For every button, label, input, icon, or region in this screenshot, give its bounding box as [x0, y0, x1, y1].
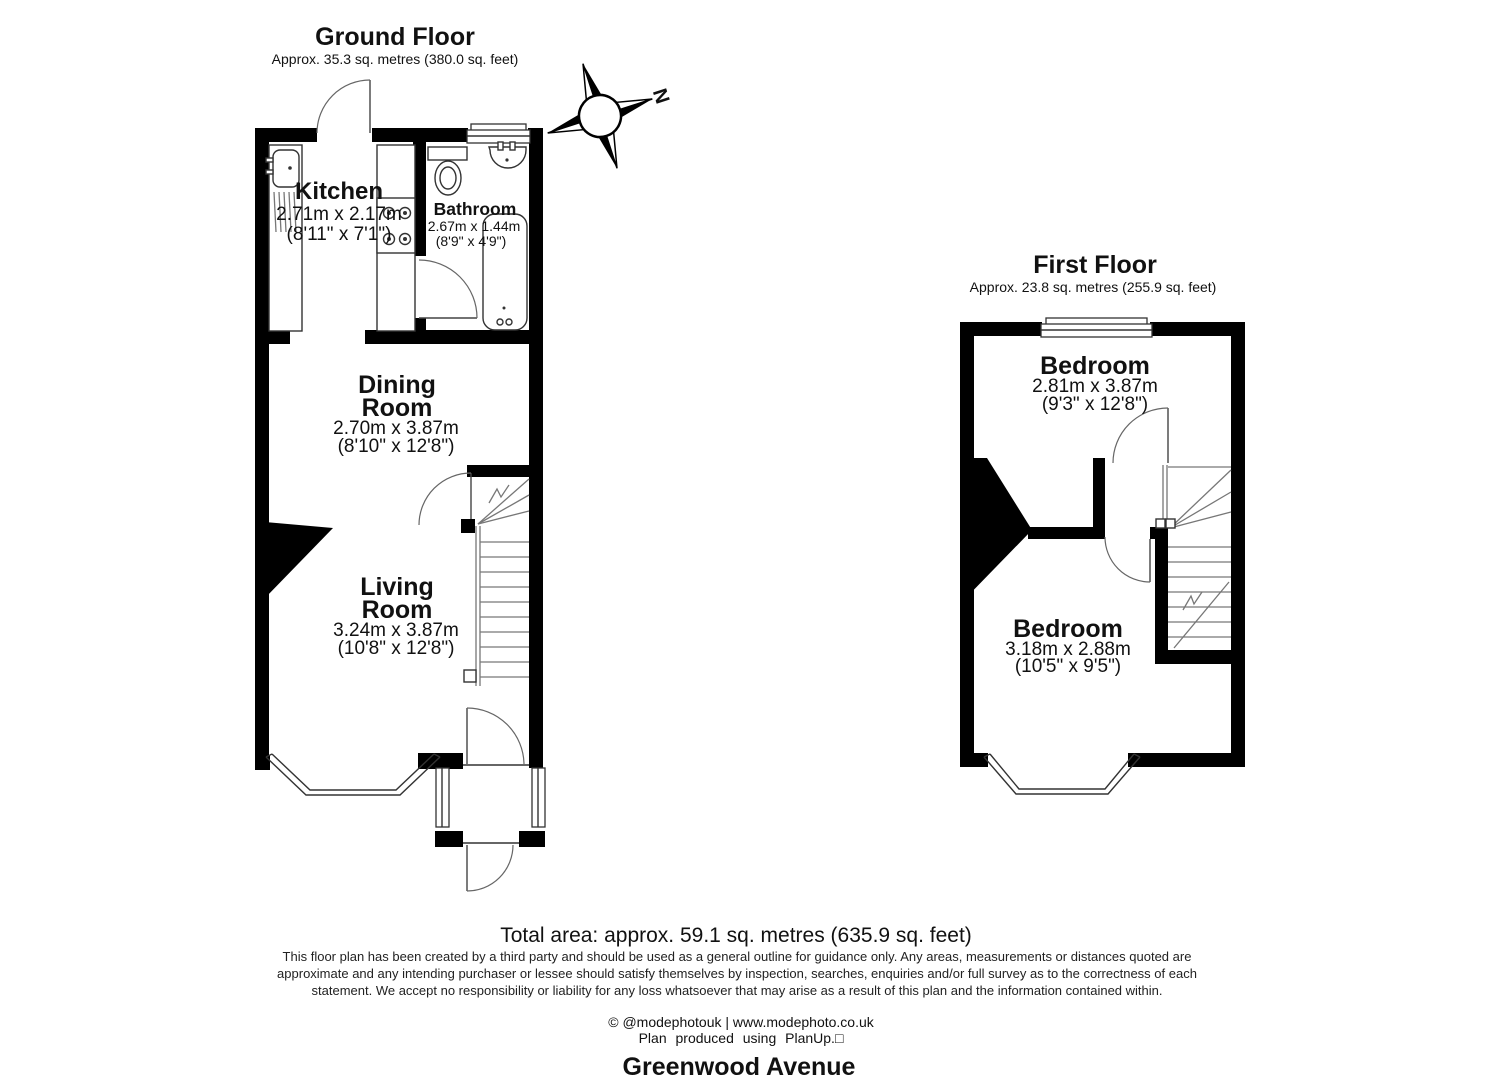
vestibule-door: [467, 708, 524, 764]
kitchen-name: Kitchen: [295, 178, 383, 205]
first-floor-plan: First Floor Approx. 23.8 sq. metres (255…: [960, 251, 1245, 794]
front-door: [463, 843, 519, 891]
bay-window-first: [984, 754, 1140, 794]
footer: Total area: approx. 59.1 sq. metres (635…: [277, 924, 1197, 1080]
bathroom-metric: 2.67m x 1.44m: [428, 218, 521, 234]
bedroom2-imperial: (10'5" x 9'5"): [1015, 656, 1121, 677]
bathroom-door: [419, 260, 477, 318]
basin-icon: [489, 142, 526, 168]
ground-floor-subtitle: Approx. 35.3 sq. metres (380.0 sq. feet): [272, 51, 519, 67]
dining-room-label: Dining Room 2.70m x 3.87m (8'10" x 12'8"…: [333, 371, 459, 457]
disclaimer-line1: This floor plan has been created by a th…: [283, 949, 1192, 964]
bathroom-name: Bathroom: [434, 199, 517, 219]
dining-imperial: (8'10" x 12'8"): [338, 436, 455, 457]
disclaimer-line3: statement. We accept no responsibility o…: [312, 983, 1163, 998]
total-area: Total area: approx. 59.1 sq. metres (635…: [500, 924, 972, 947]
toilet-icon: [428, 147, 467, 195]
kitchen-imperial: (8'11" x 7'1"): [287, 224, 392, 245]
ground-floor-title: Ground Floor: [315, 23, 475, 51]
living-imperial: (10'8" x 12'8"): [338, 638, 455, 659]
stairs-door: [419, 473, 471, 525]
porch-window-right: [532, 768, 545, 827]
first-floor-title: First Floor: [1033, 251, 1157, 279]
porch-window-left: [436, 768, 449, 827]
porch: [436, 708, 545, 891]
bathroom-imperial: (8'9" x 4'9"): [436, 233, 507, 249]
living-room-label: Living Room 3.24m x 3.87m (10'8" x 12'8"…: [333, 573, 459, 659]
bedroom2-label: Bedroom 3.18m x 2.88m (10'5" x 9'5"): [1005, 615, 1131, 677]
compass-north-label: N: [648, 86, 673, 107]
compass-icon: N: [531, 41, 688, 186]
first-floor-subtitle: Approx. 23.8 sq. metres (255.9 sq. feet): [970, 279, 1217, 295]
credit-line: © @modephotouk | www.modephoto.co.uk: [608, 1014, 875, 1030]
chimney-breast-first: [961, 458, 1032, 603]
back-door: [317, 80, 370, 133]
bathroom-window-icon: [467, 124, 530, 143]
bay-window-ground: [266, 754, 440, 795]
kitchen-metric: 2.71m x 2.17m: [276, 204, 402, 225]
floorplan-page: Ground Floor Approx. 35.3 sq. metres (38…: [0, 0, 1485, 1080]
ground-floor-plan: Ground Floor Approx. 35.3 sq. metres (38…: [255, 23, 545, 891]
kitchen-label: Kitchen 2.71m x 2.17m (8'11" x 7'1"): [276, 178, 402, 245]
produced-line: Plan produced using PlanUp.□: [639, 1030, 844, 1046]
staircase-ground: [464, 479, 529, 686]
stairs-up-arrow: [489, 485, 509, 503]
address-title: Greenwood Avenue: [623, 1053, 856, 1080]
bedroom1-label: Bedroom 2.81m x 3.87m (9'3" x 12'8"): [1032, 352, 1158, 415]
bedroom1-door: [1113, 408, 1168, 463]
bedroom1-imperial: (9'3" x 12'8"): [1042, 394, 1148, 415]
disclaimer-line2: approximate and any intending purchaser …: [277, 966, 1197, 981]
bedroom2-door: [1105, 537, 1150, 582]
bedroom-window-icon: [1041, 318, 1152, 337]
chimney-breast-ground: [265, 522, 333, 598]
